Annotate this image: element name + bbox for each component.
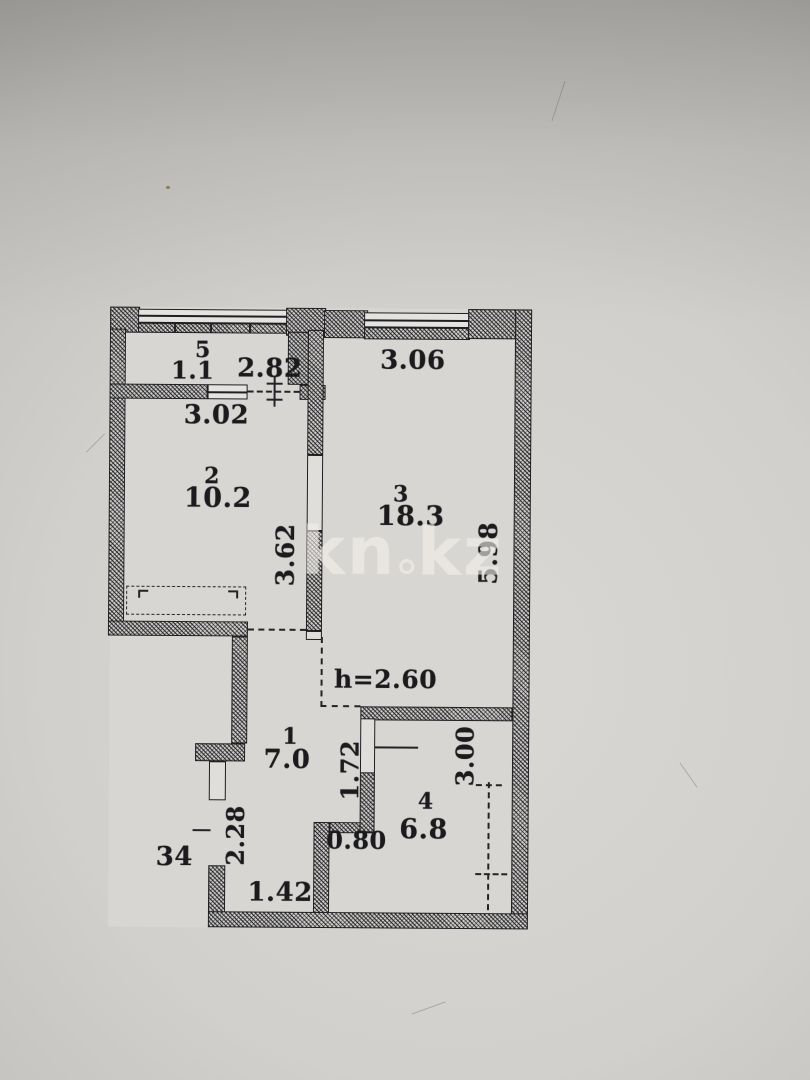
room3-window — [364, 312, 470, 328]
wall-stub — [195, 743, 245, 761]
room-area-1: 7.0 — [264, 745, 311, 775]
photographed-paper-background: 5 1.1 2.82 3.06 3.02 2 10.2 3 18.3 3.62 … — [0, 0, 810, 1080]
ceiling-height-note: h=2.60 — [334, 665, 437, 695]
wall-bottom-outer — [208, 911, 528, 929]
apartment-number: 34 — [156, 842, 193, 872]
entry-door-leaf — [193, 829, 211, 831]
dim-kitchen-depth: 3.00 — [450, 726, 479, 787]
wall-top — [324, 310, 368, 338]
wall-entry-left — [209, 761, 226, 800]
room-area-5: 1.1 — [171, 355, 214, 384]
kitchen-dashed-tick — [476, 784, 502, 786]
kitchen-dashed-tick — [475, 873, 507, 875]
balcony-glazing-mullion — [210, 324, 212, 332]
dim-hall-width: 1.72 — [335, 740, 364, 801]
room2-opening — [248, 628, 306, 630]
wall-balcony-room2 — [110, 384, 208, 400]
wardrobe-mark — [138, 590, 148, 598]
dim-kitchen-door-width: 0.80 — [326, 826, 387, 855]
watermark: kn kz — [301, 512, 504, 590]
room-number-4: 4 — [418, 789, 434, 815]
room-area-2: 10.2 — [184, 483, 252, 514]
wall-entry-left-lower — [208, 865, 225, 912]
wall-left-outer — [108, 329, 126, 636]
dim-room2-depth: 3.62 — [271, 523, 300, 586]
watermark-text-right: kz — [417, 513, 504, 591]
wall-under-window — [364, 327, 470, 340]
wardrobe-mark — [228, 590, 238, 598]
wall-hall-left-upper — [231, 636, 248, 743]
kitchen-door-leaf — [374, 746, 418, 748]
watermark-text-left: kn — [301, 512, 396, 590]
balcony-parapet-wall — [138, 323, 290, 334]
room-area-4: 6.8 — [399, 814, 448, 845]
wall-room2-room3 — [307, 330, 324, 455]
dim-balcony-width: 2.82 — [237, 353, 303, 383]
dim-room2-width: 3.02 — [184, 400, 250, 430]
balcony-glazing-mullion — [249, 324, 251, 332]
dim-room3-width: 3.06 — [380, 345, 446, 375]
floor-plan: 5 1.1 2.82 3.06 3.02 2 10.2 3 18.3 3.62 … — [0, 0, 810, 1080]
balcony-glazing-mullion — [174, 324, 176, 332]
balcony-window — [138, 309, 290, 324]
wall-room2-bottom — [108, 621, 248, 637]
wall-kitchen-top — [360, 706, 512, 721]
hall-kitchen-opening — [320, 705, 360, 707]
wall-end-cap — [306, 631, 322, 640]
dim-entry-width: 1.42 — [247, 878, 313, 908]
dimension-tick — [267, 399, 283, 401]
dim-entry-depth: 2.28 — [221, 805, 250, 866]
room2-balcony-window — [208, 384, 248, 399]
watermark-dot-icon — [399, 559, 414, 574]
wall-right-outer — [511, 309, 532, 929]
